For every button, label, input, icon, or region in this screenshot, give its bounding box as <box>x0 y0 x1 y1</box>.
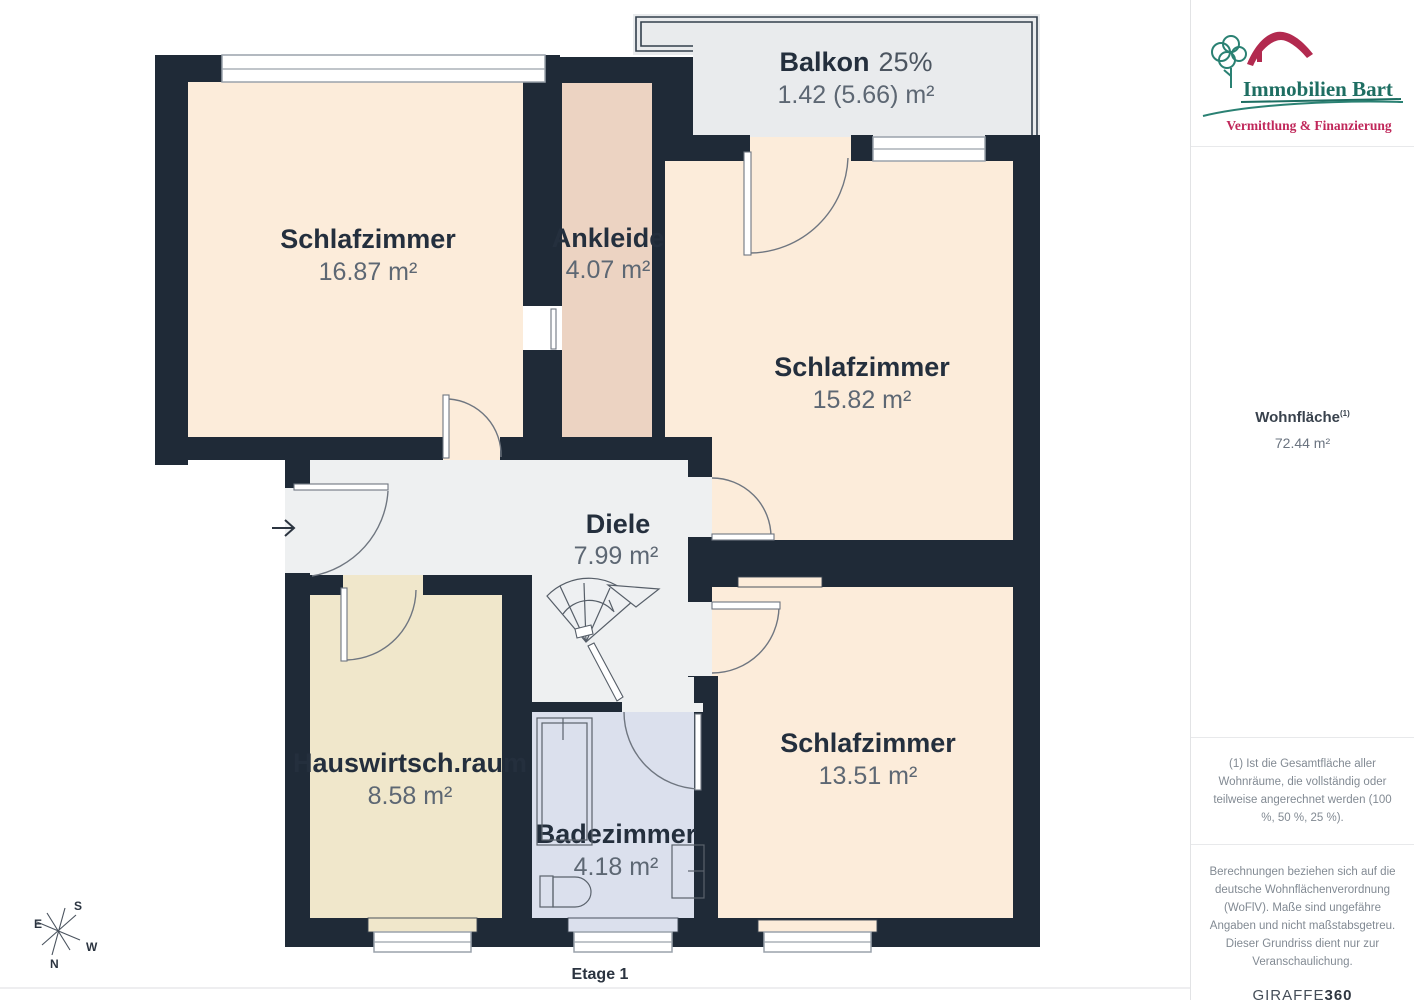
compass-north: N <box>50 957 59 971</box>
window-badezimmer <box>568 918 678 952</box>
logo-swoosh <box>1203 102 1403 116</box>
compass-east: E <box>34 917 42 931</box>
brand-suffix: 360 <box>1324 987 1352 1000</box>
agency-name: Immobilien Bart <box>1243 77 1393 101</box>
compass-south: S <box>74 899 82 913</box>
area-balkon: 1.42 (5.66) m² <box>777 81 934 109</box>
disclaimer-section: Berechnungen beziehen sich auf die deuts… <box>1191 845 1414 1000</box>
compass-west: W <box>86 940 98 954</box>
tree-icon <box>1212 36 1246 88</box>
brand-logo: GIRAFFE360 <box>1191 987 1414 1000</box>
area-schlafzimmer-3: 13.51 m² <box>819 762 918 790</box>
floor-plan-panel: S E W N Schlafzimmer 16.87 m² Ankleide 4… <box>0 0 1190 1000</box>
label-schlafzimmer-1: Schlafzimmer <box>280 224 456 254</box>
agency-tagline: Vermittlung & Finanzierung <box>1226 118 1391 133</box>
agency-logo: Immobilien Bart Vermittlung & Finanzieru… <box>1191 0 1414 147</box>
living-area-value: 72.44 m² <box>1191 435 1414 451</box>
chimney-icon <box>1257 46 1262 62</box>
area-badezimmer: 4.18 m² <box>574 853 659 881</box>
agency-logo-graphic: Immobilien Bart Vermittlung & Finanzieru… <box>1191 0 1414 146</box>
footnote-marker: (1) <box>1340 409 1350 418</box>
area-schlafzimmer-1: 16.87 m² <box>319 258 418 286</box>
svg-text:Balkon25%: Balkon25% <box>779 47 932 77</box>
roof-icon <box>1247 32 1313 66</box>
floor-label: Etage 1 <box>572 966 629 983</box>
room-badezimmer-floor <box>532 712 703 918</box>
window-schlafzimmer-2 <box>873 137 985 161</box>
balcony <box>633 14 1040 140</box>
area-schlafzimmer-2: 15.82 m² <box>813 386 912 414</box>
label-diele: Diele <box>586 509 651 539</box>
area-diele: 7.99 m² <box>574 542 659 570</box>
balkon-percent: 25% <box>878 47 932 77</box>
window-schlafzimmer-1 <box>222 55 545 82</box>
living-area-label: Wohnfläche(1) <box>1191 409 1414 426</box>
label-balkon: Balkon <box>779 47 869 77</box>
disclaimer-text: Berechnungen beziehen sich auf die deuts… <box>1209 863 1397 971</box>
living-area-section: Wohnfläche(1) 72.44 m² <box>1191 147 1414 737</box>
area-hauswirtschaftsraum: 8.58 m² <box>368 782 453 810</box>
footnote-text: (1) Ist die Gesamtfläche aller Wohnräume… <box>1209 755 1397 827</box>
window-hauswirtschaftsraum <box>368 918 477 952</box>
door-ankleide <box>551 309 556 349</box>
wall-niche <box>738 577 822 587</box>
footnote-section: (1) Ist die Gesamtfläche aller Wohnräume… <box>1191 737 1414 845</box>
floorplan-page: S E W N Schlafzimmer 16.87 m² Ankleide 4… <box>0 0 1414 1000</box>
window-schlafzimmer-3 <box>758 920 877 952</box>
brand-name: GIRAFFE <box>1252 987 1324 1000</box>
info-sidebar: Immobilien Bart Vermittlung & Finanzieru… <box>1190 0 1414 1000</box>
compass-icon: S E W N <box>34 899 98 971</box>
label-schlafzimmer-2: Schlafzimmer <box>774 352 950 382</box>
area-ankleide: 4.07 m² <box>566 256 651 284</box>
floor-plan: S E W N Schlafzimmer 16.87 m² Ankleide 4… <box>0 0 1190 1000</box>
label-hauswirtschaftsraum: Hauswirtsch.raum <box>293 748 527 778</box>
label-schlafzimmer-3: Schlafzimmer <box>780 728 956 758</box>
label-ankleide: Ankleide <box>552 223 665 253</box>
